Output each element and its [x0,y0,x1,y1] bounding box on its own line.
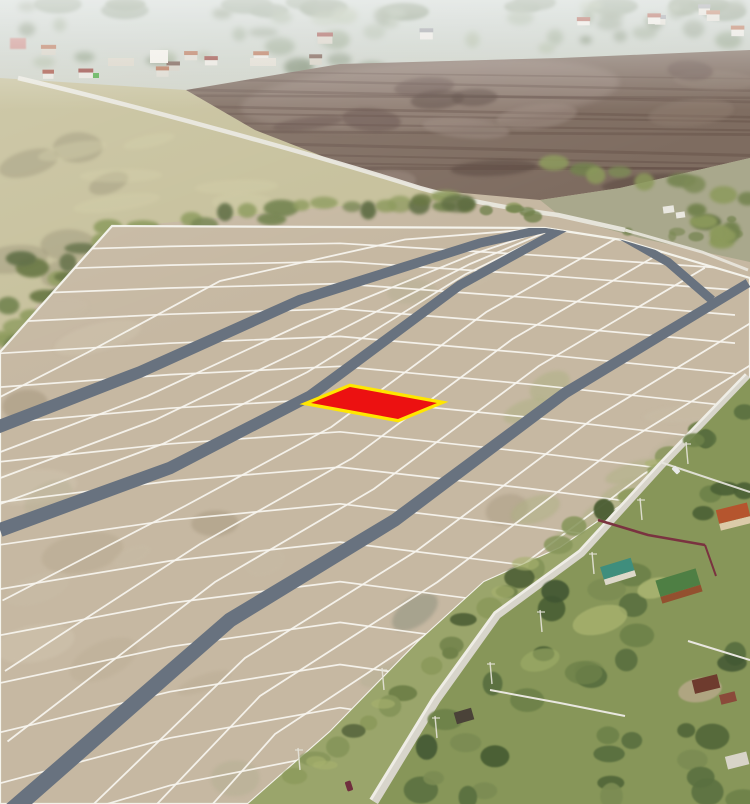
aerial-plot-map-image [0,0,750,804]
screenshot-root [0,0,750,804]
atmospheric-haze-overlay [0,0,750,804]
